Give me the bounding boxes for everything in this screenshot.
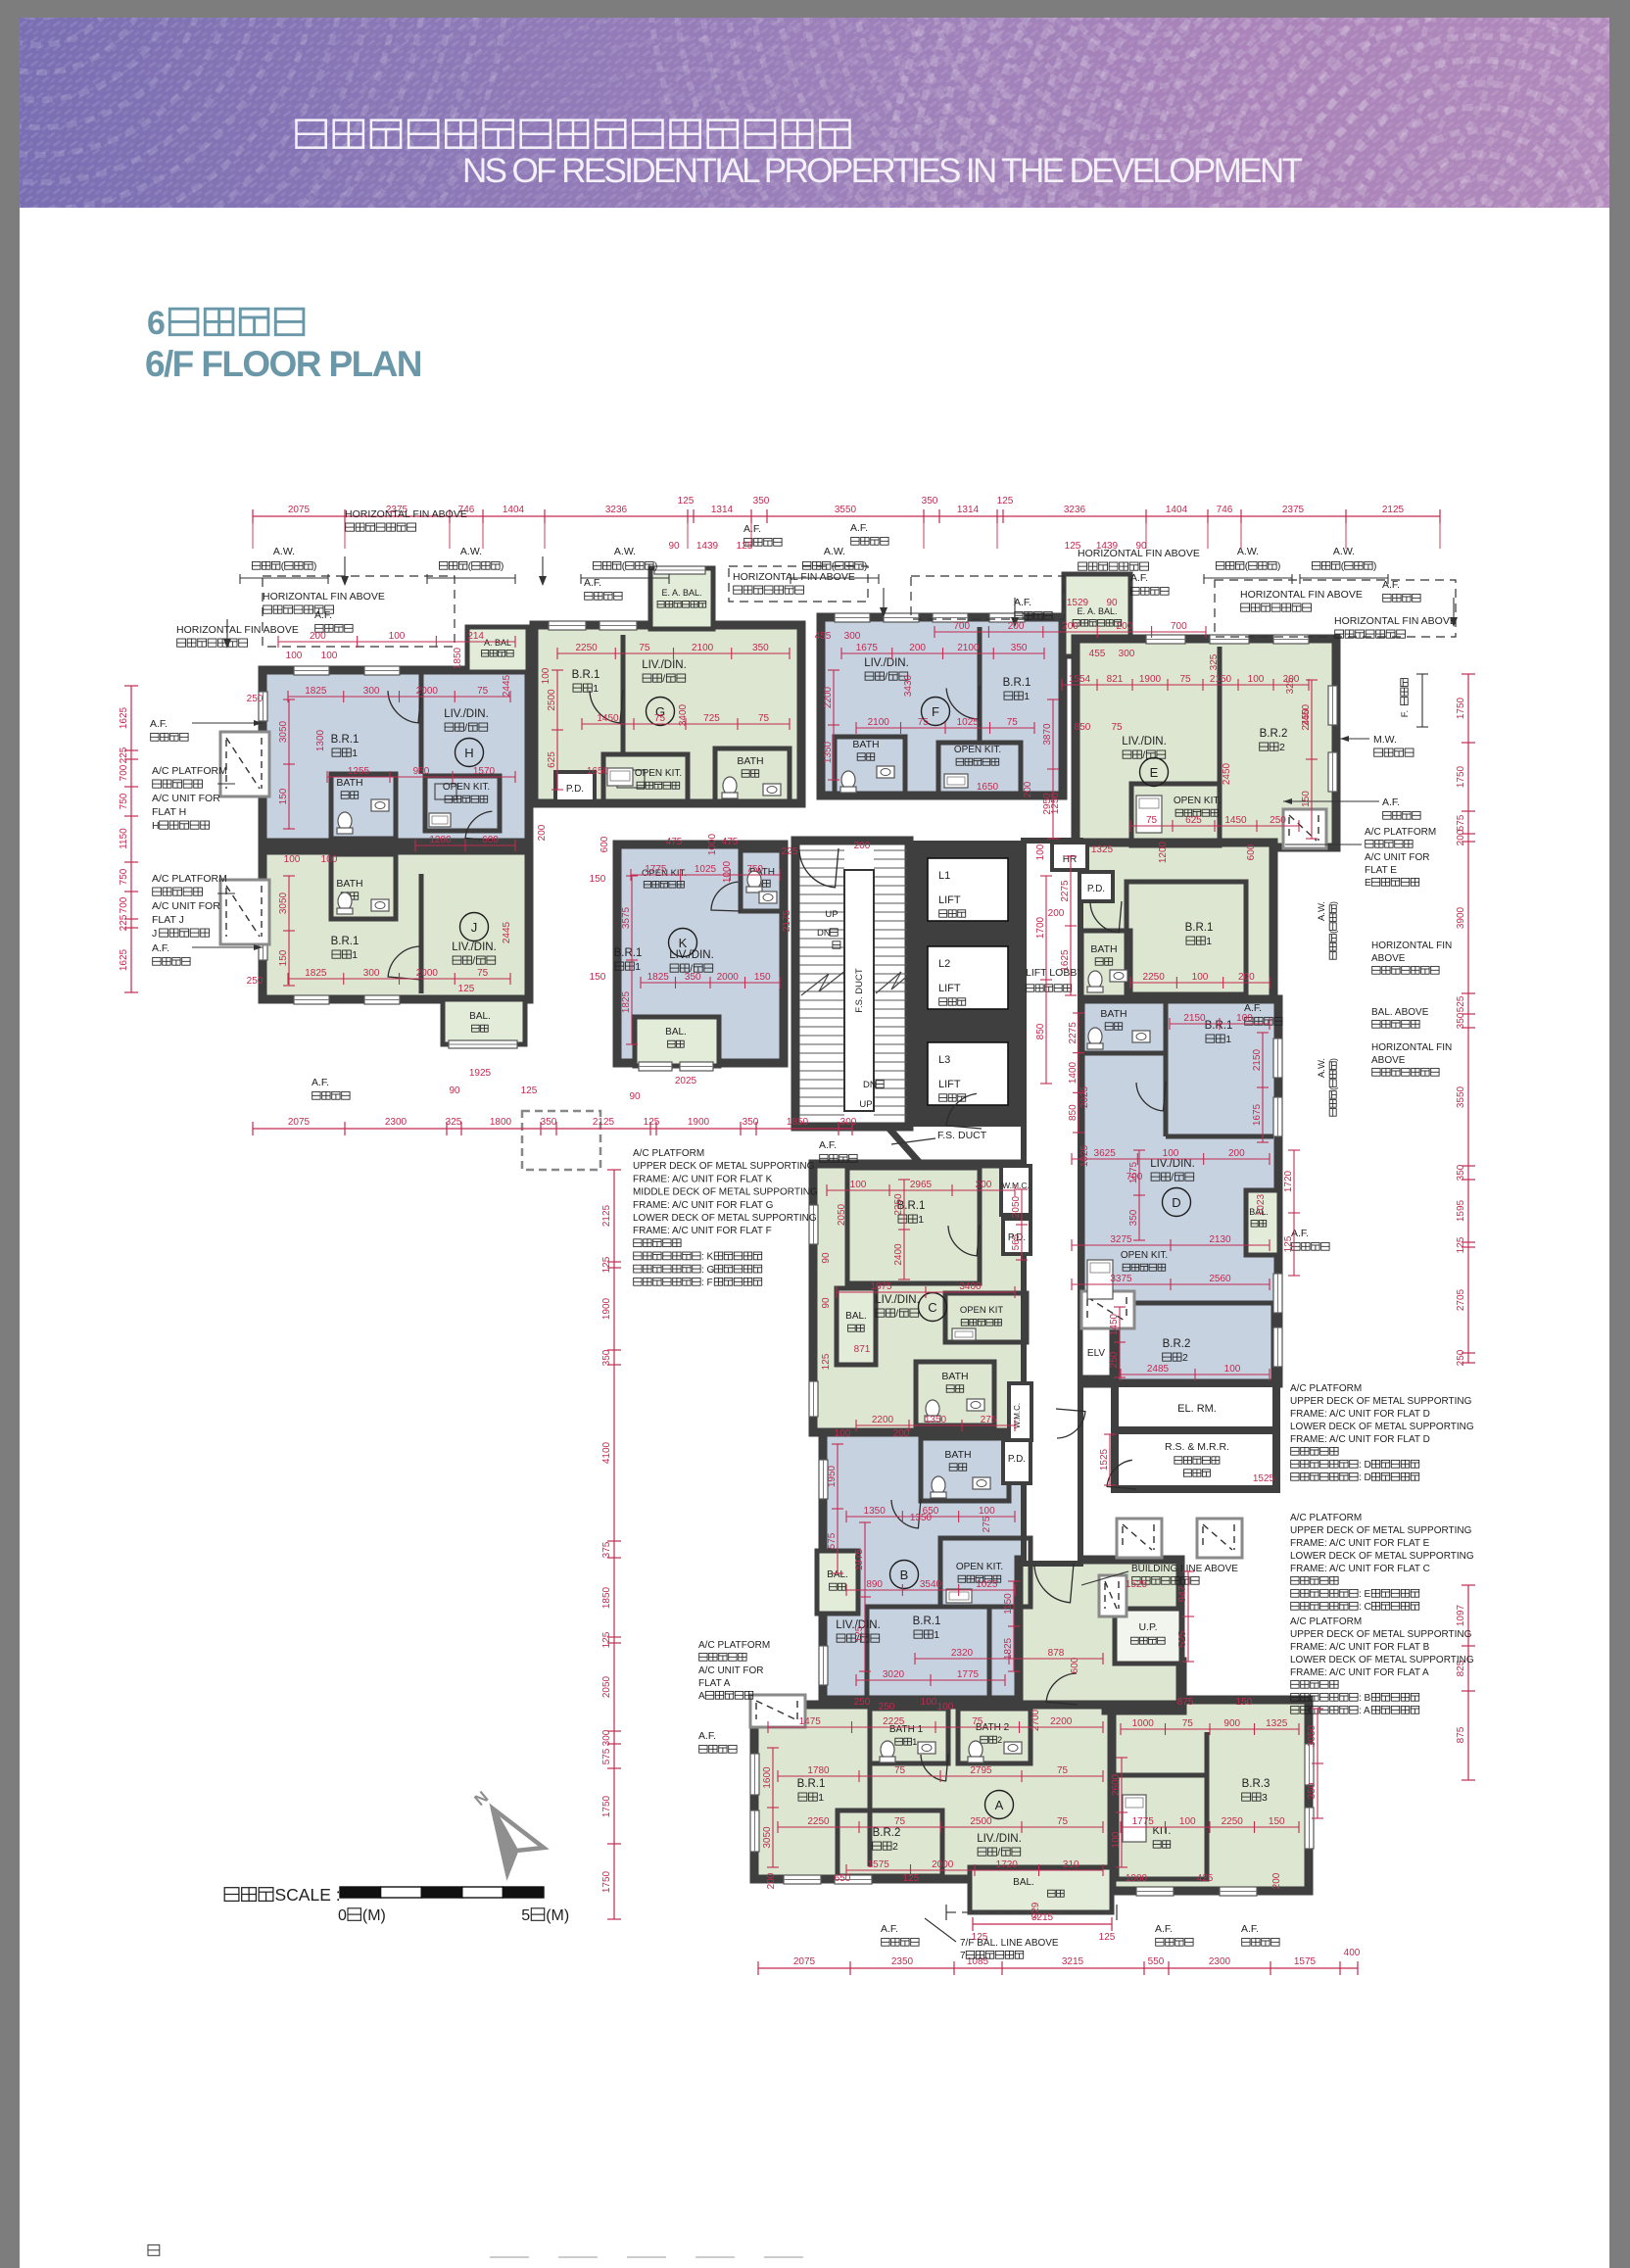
svg-text:2125: 2125 [601,1204,612,1227]
svg-text:(M): (M) [546,1907,569,1924]
svg-text:625: 625 [547,751,557,768]
svg-text:B.R.1: B.R.1 [614,947,643,959]
svg-text:2600: 2600 [1111,1773,1122,1796]
svg-text:HORIZONTAL FIN: HORIZONTAL FIN [1371,941,1452,951]
svg-text:HORIZONTAL FIN ABOVE: HORIZONTAL FIN ABOVE [1240,589,1363,601]
svg-text:1314: 1314 [957,505,980,515]
svg-text:A/C UNIT FOR: A/C UNIT FOR [152,793,220,804]
svg-text:310: 310 [1063,1859,1079,1870]
svg-text:3050: 3050 [278,720,289,743]
svg-text:OPEN KIT.: OPEN KIT. [443,782,490,793]
svg-text:75: 75 [894,1816,906,1827]
svg-text:75: 75 [1146,815,1158,826]
svg-text:350: 350 [1456,1164,1466,1181]
svg-text:1675: 1675 [856,643,879,653]
svg-text:BATH: BATH [944,1449,971,1461]
svg-text:200: 200 [1048,908,1065,919]
svg-text:350: 350 [1307,1782,1318,1799]
svg-text:150: 150 [754,972,771,983]
svg-text:A.F.: A.F. [1382,796,1400,808]
svg-text:UPPER DECK OF METAL SUPPORTING: UPPER DECK OF METAL SUPPORTING [1290,1396,1472,1407]
svg-text:3550: 3550 [835,505,857,515]
svg-text:2400: 2400 [893,1243,904,1266]
svg-text:400: 400 [1344,1948,1361,1958]
svg-text:225: 225 [119,914,129,931]
svg-text:1097: 1097 [1456,1604,1466,1626]
svg-text:0: 0 [338,1907,347,1924]
svg-text:2075: 2075 [793,1956,816,1967]
svg-text:200: 200 [1117,621,1133,632]
svg-text:125: 125 [601,1256,612,1273]
svg-text:875: 875 [1177,1697,1194,1708]
svg-text:2500: 2500 [970,1816,992,1827]
svg-text:1650: 1650 [977,782,999,793]
svg-text:1825: 1825 [621,990,632,1013]
svg-text:A/C PLATFORM: A/C PLATFORM [152,873,227,885]
svg-text:746: 746 [1217,505,1233,515]
svg-text:FLAT H: FLAT H [152,806,186,818]
svg-text:: F: : F [701,1278,713,1288]
svg-text:150: 150 [278,788,289,804]
svg-text:F: F [932,704,939,719]
svg-text:75: 75 [758,713,770,724]
svg-text:200: 200 [1271,1872,1282,1889]
svg-text:600: 600 [482,835,499,845]
svg-text:UP: UP [825,909,838,920]
svg-text:1325: 1325 [1091,844,1114,855]
svg-text:R.S. & M.R.R.: R.S. & M.R.R. [1165,1441,1229,1453]
svg-text:455: 455 [815,631,832,642]
svg-text:A.F.: A.F. [1014,597,1031,608]
svg-text:300: 300 [844,631,861,642]
svg-text:B.R.1: B.R.1 [331,936,360,947]
svg-text:E. A. BAL.: E. A. BAL. [661,588,701,598]
svg-text:100: 100 [921,1697,937,1708]
svg-text:/: / [997,1847,1000,1858]
svg-text:947: 947 [1177,1585,1188,1602]
svg-text:2225: 2225 [883,1716,905,1727]
svg-text:L1: L1 [938,870,950,882]
svg-text:LOWER DECK OF METAL SUPPORTING: LOWER DECK OF METAL SUPPORTING [1290,1551,1474,1562]
svg-text:1625: 1625 [119,948,129,971]
svg-text:2000: 2000 [416,686,439,697]
svg-text:75: 75 [477,968,489,979]
svg-text:90: 90 [629,1091,641,1102]
svg-text:(: ( [1328,931,1338,934]
svg-text:350: 350 [601,1349,612,1366]
svg-text:350: 350 [1456,1012,1466,1029]
svg-text:A.W.: A.W. [1317,901,1327,921]
svg-text:LIV./DIN.: LIV./DIN. [875,1294,920,1306]
svg-text:2500: 2500 [547,689,557,711]
svg-text:1780: 1780 [807,1765,830,1776]
svg-text:A/C PLATFORM: A/C PLATFORM [152,765,227,777]
svg-text:2075: 2075 [288,1117,311,1128]
svg-text:3400: 3400 [678,703,689,726]
svg-text:UPPER DECK OF METAL SUPPORTING: UPPER DECK OF METAL SUPPORTING [1290,1629,1472,1640]
svg-text:750: 750 [119,868,129,885]
svg-text:300: 300 [1119,649,1135,659]
svg-text:1: 1 [352,748,358,759]
svg-text:ABOVE: ABOVE [1371,953,1406,964]
svg-text:1025: 1025 [957,717,980,728]
svg-text:A.F.: A.F. [1382,579,1400,591]
svg-text:DN: DN [817,928,831,939]
svg-text:2150: 2150 [1210,674,1232,685]
svg-text:OPEN KIT.: OPEN KIT. [635,768,682,779]
svg-text:UPPER DECK OF METAL SUPPORTING: UPPER DECK OF METAL SUPPORTING [1290,1525,1472,1536]
svg-text:1255: 1255 [348,766,370,777]
svg-text:625: 625 [1185,815,1202,826]
svg-text:2000: 2000 [932,1859,954,1870]
svg-text:2200: 2200 [1050,1716,1073,1727]
svg-text:2025: 2025 [675,1076,697,1086]
svg-text:1575: 1575 [1294,1956,1317,1967]
svg-text:A.F.: A.F. [850,522,868,534]
svg-text:1825: 1825 [1003,1637,1014,1660]
svg-text:75: 75 [894,1765,906,1776]
svg-text:A.W.: A.W. [1317,1058,1327,1078]
svg-text:350: 350 [922,496,938,507]
svg-text:150: 150 [278,949,289,966]
svg-text:1875: 1875 [870,1281,892,1292]
svg-text:2250: 2250 [576,643,599,653]
svg-text:850: 850 [1035,1023,1046,1039]
svg-text:275: 275 [981,1415,997,1425]
svg-text:2200: 2200 [872,1415,894,1425]
svg-text:125: 125 [601,1631,612,1648]
svg-text:: D: : D [1359,1472,1371,1483]
svg-text:A/C PLATFORM: A/C PLATFORM [1290,1617,1362,1627]
svg-text:1775: 1775 [1132,1816,1155,1827]
svg-text:P.D.: P.D. [1087,884,1105,894]
svg-text:100: 100 [389,631,406,642]
svg-text:E: E [1365,878,1371,889]
svg-text:100: 100 [1035,844,1046,860]
svg-text:OPEN KIT: OPEN KIT [960,1305,1004,1316]
svg-text:A.F.: A.F. [743,523,761,535]
svg-text:150: 150 [590,972,606,983]
svg-text:1825: 1825 [305,686,327,697]
svg-text:250: 250 [879,1702,895,1713]
svg-text:A. BAL: A. BAL [484,638,511,648]
svg-text:250: 250 [854,1697,871,1708]
svg-text:2025: 2025 [1079,1086,1090,1108]
svg-text:325: 325 [1209,653,1220,670]
svg-text:1900: 1900 [1139,674,1162,685]
svg-text:1975: 1975 [854,1548,865,1570]
svg-text:3236: 3236 [605,505,628,515]
svg-text:75: 75 [1111,722,1123,733]
svg-text:1300: 1300 [315,729,326,751]
svg-text:LOWER DECK OF METAL SUPPORTING: LOWER DECK OF METAL SUPPORTING [1290,1655,1474,1665]
svg-text:100: 100 [1248,674,1265,685]
svg-text:100: 100 [1163,1148,1179,1159]
svg-text:B.R.2: B.R.2 [1163,1338,1191,1350]
svg-text:1: 1 [934,1629,939,1641]
svg-text:3050: 3050 [278,892,289,914]
svg-text:125: 125 [458,984,475,994]
svg-text:LIV./DIN.: LIV./DIN. [444,708,489,720]
svg-text:1529: 1529 [1067,598,1089,608]
svg-text:/: / [1171,1172,1174,1183]
svg-text:90: 90 [821,1252,832,1264]
svg-text:: G: : G [701,1265,715,1276]
svg-text:150: 150 [1301,791,1312,807]
svg-text:HORIZONTAL FIN ABOVE: HORIZONTAL FIN ABOVE [176,624,299,636]
svg-text:1700: 1700 [1035,916,1046,939]
svg-text:2300: 2300 [385,1117,407,1128]
svg-text:1000: 1000 [1126,1873,1148,1884]
svg-text:1023: 1023 [1256,1193,1267,1216]
svg-text:HORIZONTAL FIN ABOVE: HORIZONTAL FIN ABOVE [345,508,467,520]
svg-text:): ) [1373,561,1376,572]
svg-text:600: 600 [1246,844,1257,860]
svg-text:P.D.: P.D. [566,784,584,795]
svg-text:350: 350 [1011,643,1028,653]
svg-text:3020: 3020 [883,1669,905,1680]
svg-text:90: 90 [821,1297,832,1309]
svg-text:L3: L3 [938,1054,950,1066]
svg-text:1439: 1439 [696,541,719,552]
svg-text:2275: 2275 [1060,880,1071,902]
svg-text:90: 90 [1135,541,1147,552]
svg-text:100: 100 [937,1702,954,1713]
svg-text:125: 125 [1283,1235,1294,1252]
svg-text:2275: 2275 [1068,1022,1079,1044]
svg-text:DN: DN [863,1080,877,1090]
svg-text:A.W.: A.W. [824,546,845,557]
svg-text:100: 100 [1179,1816,1196,1827]
svg-text:575: 575 [827,1532,838,1549]
svg-text:2100: 2100 [692,643,714,653]
svg-text:B.R.1: B.R.1 [1205,1020,1233,1032]
svg-text:3430: 3430 [903,674,914,697]
svg-text:: E: : E [1359,1589,1371,1600]
svg-text:350: 350 [1128,1209,1139,1226]
svg-text:150: 150 [1269,1816,1285,1827]
svg-text:LIFT LOBBY: LIFT LOBBY [1026,967,1083,979]
svg-text:850: 850 [1068,1104,1079,1121]
svg-text:2250: 2250 [1222,1816,1244,1827]
svg-text:1650: 1650 [587,766,609,777]
svg-text:2075: 2075 [288,505,311,515]
svg-text:2: 2 [997,1735,1002,1745]
svg-text:1475: 1475 [799,1716,822,1727]
svg-text:): ) [501,561,503,572]
svg-text:100: 100 [284,854,301,865]
svg-text:375: 375 [601,1541,612,1558]
svg-text:214: 214 [467,631,484,642]
svg-text:LOWER DECK OF METAL SUPPORTING: LOWER DECK OF METAL SUPPORTING [633,1213,817,1224]
svg-text:100: 100 [321,651,338,661]
svg-text:225: 225 [782,846,798,857]
svg-text:250: 250 [1270,815,1286,826]
svg-text:2320: 2320 [951,1648,974,1659]
svg-text:/: / [472,955,475,967]
svg-text:B.R.1: B.R.1 [331,734,360,746]
svg-text:1250: 1250 [1050,792,1061,814]
svg-text:BAL.: BAL. [1013,1877,1034,1888]
svg-text:475: 475 [666,837,683,847]
svg-text:1350: 1350 [864,1506,887,1517]
svg-text:ABOVE: ABOVE [1371,1055,1406,1066]
svg-text:D: D [1172,1195,1180,1210]
svg-text:1350: 1350 [823,741,834,763]
svg-text:: C: : C [1359,1602,1371,1613]
svg-text:3870: 3870 [1042,723,1053,746]
svg-text:200: 200 [1023,781,1033,797]
svg-text:/: / [1142,749,1145,761]
svg-text:200: 200 [909,643,926,653]
svg-text:BATH: BATH [852,739,879,750]
svg-text:1750: 1750 [1456,765,1466,788]
svg-text:200: 200 [976,1180,992,1190]
svg-text:A.F.: A.F. [1130,572,1148,584]
svg-text:FRAME: A/C UNIT FOR FLAT B: FRAME: A/C UNIT FOR FLAT B [1290,1642,1430,1653]
svg-text:700: 700 [119,764,129,781]
svg-text:75: 75 [477,686,489,697]
svg-text:700: 700 [953,621,970,632]
svg-text:2350: 2350 [891,1956,914,1967]
svg-text:A.F.: A.F. [312,1077,329,1088]
svg-text:LIV./DIN.: LIV./DIN. [1150,1158,1195,1170]
svg-text:250: 250 [247,976,264,987]
svg-text:1625: 1625 [1060,949,1071,972]
svg-text:2: 2 [892,1841,898,1853]
svg-text:1000: 1000 [707,833,718,855]
svg-text:75: 75 [654,713,666,724]
svg-text:LIV./DIN.: LIV./DIN. [864,657,909,669]
svg-text:K: K [679,936,688,950]
svg-text:A/C UNIT FOR: A/C UNIT FOR [1365,852,1429,863]
svg-text:1825: 1825 [305,968,327,979]
svg-text:125: 125 [821,1353,832,1370]
svg-text:MIDDLE DECK OF METAL SUPPORTIN: MIDDLE DECK OF METAL SUPPORTING [633,1187,818,1198]
svg-text:2130: 2130 [1209,1234,1231,1245]
svg-text:FRAME: A/C UNIT FOR FLAT D: FRAME: A/C UNIT FOR FLAT D [1290,1409,1430,1420]
svg-text:750: 750 [746,864,763,875]
svg-text:200: 200 [854,841,871,851]
svg-text:1: 1 [1206,936,1212,947]
svg-text:455: 455 [1089,649,1106,659]
svg-text:1450: 1450 [597,713,619,724]
svg-text:A: A [995,1798,1004,1812]
svg-text:1925: 1925 [469,1068,492,1079]
svg-text:1404: 1404 [1166,505,1188,515]
svg-text:890: 890 [866,1579,883,1590]
svg-text:950: 950 [413,766,430,777]
svg-text:1000: 1000 [1132,1718,1155,1729]
svg-text:350: 350 [541,1117,557,1128]
svg-text:850: 850 [1075,722,1091,733]
svg-text:/: / [464,722,467,734]
svg-text:875: 875 [1456,1726,1466,1743]
svg-text:125: 125 [903,1873,920,1884]
svg-text:A.F.: A.F. [1155,1923,1173,1935]
svg-text:565: 565 [1011,1233,1022,1250]
svg-text:F.S. DUCT: F.S. DUCT [937,1130,987,1141]
svg-text:300: 300 [840,1117,857,1128]
svg-text:1750: 1750 [601,1795,612,1817]
svg-text:700: 700 [1127,1172,1143,1182]
svg-text:200: 200 [893,1428,910,1439]
svg-text:100: 100 [1224,1364,1241,1375]
svg-text:2560: 2560 [1209,1274,1231,1284]
svg-text:LIV./DIN.: LIV./DIN. [452,941,497,953]
svg-text:H: H [152,820,160,832]
svg-text:2250: 2250 [807,1816,830,1827]
svg-text:1575: 1575 [868,1859,890,1870]
svg-text:UP: UP [859,1099,872,1110]
svg-text:OPEN KIT.: OPEN KIT. [956,1562,1003,1572]
svg-text:1200: 1200 [429,835,452,845]
svg-text:FLAT J: FLAT J [152,914,184,926]
svg-text:2705: 2705 [1456,1288,1466,1311]
svg-text:3050: 3050 [762,1826,773,1849]
svg-text:HORIZONTAL FIN ABOVE: HORIZONTAL FIN ABOVE [733,571,855,583]
svg-text:B.R.1: B.R.1 [1003,677,1031,689]
svg-text:300: 300 [601,1729,612,1746]
svg-text:1720: 1720 [996,1859,1019,1870]
svg-text:): ) [313,561,316,572]
svg-text:900: 900 [1223,1718,1240,1729]
svg-text:750: 750 [119,793,129,809]
svg-text:BATH: BATH [1100,1008,1127,1020]
svg-text:1439: 1439 [1096,541,1119,552]
svg-text:(M): (M) [362,1907,386,1924]
svg-text:2200: 2200 [823,686,834,708]
svg-text:2100: 2100 [868,717,890,728]
svg-text:2375: 2375 [1282,505,1305,515]
svg-text:A/C PLATFORM: A/C PLATFORM [1290,1383,1362,1394]
svg-text:U.P.: U.P. [1138,1621,1157,1633]
svg-text:A.F.: A.F. [1241,1923,1259,1935]
svg-text:2445: 2445 [502,674,512,697]
svg-text:75: 75 [1007,717,1019,728]
svg-text:125: 125 [1456,1236,1466,1253]
svg-text:75: 75 [639,643,650,653]
svg-text:BAL.: BAL. [469,1011,491,1022]
svg-text:M.W.: M.W. [1373,734,1397,746]
svg-text:1850: 1850 [787,1117,809,1128]
svg-text:1900: 1900 [688,1117,710,1128]
svg-text:1350: 1350 [925,1415,947,1425]
svg-text:1: 1 [352,949,358,961]
svg-text:200: 200 [766,1872,777,1889]
svg-text:A/C UNIT FOR: A/C UNIT FOR [152,900,220,912]
svg-text:LIFT: LIFT [938,983,961,994]
svg-text:2175: 2175 [782,909,792,932]
svg-text:200: 200 [1456,829,1466,845]
svg-text:FRAME: A/C UNIT FOR FLAT K: FRAME: A/C UNIT FOR FLAT K [633,1174,773,1184]
svg-text:821: 821 [1107,674,1124,685]
svg-text:2000: 2000 [416,968,439,979]
svg-text:1: 1 [912,1737,917,1747]
svg-text:A.F.: A.F. [698,1730,716,1742]
svg-text:2050: 2050 [837,1203,847,1226]
svg-text:B.R.1: B.R.1 [913,1616,941,1627]
svg-text:1400: 1400 [1068,1061,1079,1084]
svg-text:: K: : K [701,1252,714,1263]
svg-text:1750: 1750 [601,1870,612,1893]
svg-text:3275: 3275 [1110,1234,1132,1245]
svg-text:125: 125 [1065,541,1081,552]
svg-text:1600: 1600 [762,1766,773,1789]
svg-text:325: 325 [446,1117,462,1128]
svg-text:125: 125 [1099,1932,1116,1943]
svg-text:BAL.: BAL. [845,1311,867,1322]
